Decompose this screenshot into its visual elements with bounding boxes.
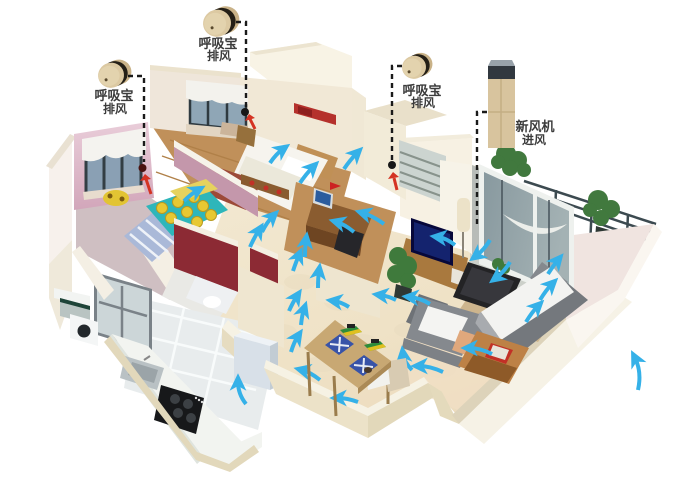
svg-text:排风: 排风 [411, 95, 435, 110]
svg-text:排风: 排风 [207, 48, 231, 63]
svg-text:新风机: 新风机 [515, 119, 554, 134]
svg-text:排风: 排风 [103, 101, 127, 116]
svg-text:呼吸宝: 呼吸宝 [94, 88, 133, 103]
svg-text:进风: 进风 [522, 132, 546, 147]
